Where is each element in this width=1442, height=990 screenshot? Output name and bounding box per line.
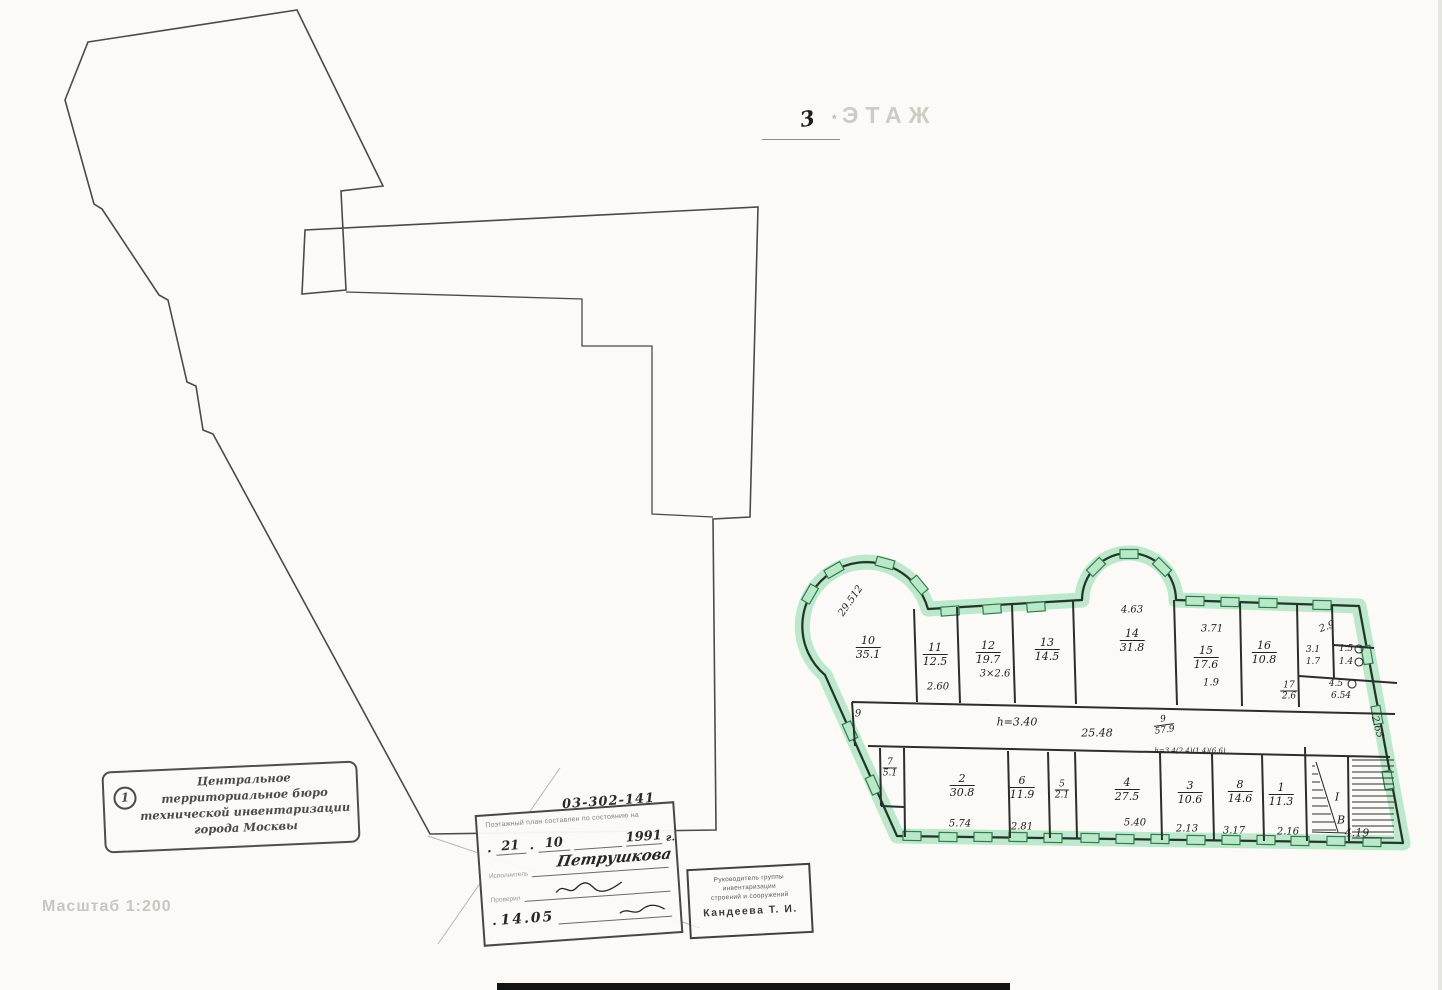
highlight-band	[802, 553, 1403, 843]
room-label-13: 1314.5	[1035, 637, 1060, 663]
dim-room8: 3.17	[1223, 826, 1245, 837]
date-sep-2: .	[529, 838, 535, 853]
corridor-tick-number: 9	[855, 709, 861, 720]
dim-strip1: 4.5	[1329, 679, 1343, 689]
dim-room3: 2.13	[1176, 824, 1198, 835]
floor-word: ЭТАЖ	[842, 102, 936, 129]
date-month: 10	[537, 835, 570, 853]
room-label-16: 1610.8	[1252, 640, 1277, 666]
dim-wc2: 1.4	[1339, 657, 1353, 667]
ceiling-height-note: h=3.40	[997, 716, 1038, 729]
room-label-9-corridor: 957.9	[1153, 713, 1176, 737]
dim-room6: 2.81	[1011, 822, 1033, 833]
room-label-7: 75.1	[883, 758, 897, 779]
bti-stamp-text: Центральное территориальное бюро техниче…	[138, 767, 353, 840]
dim-cluster-w2: 1.7	[1306, 657, 1320, 667]
dim-cluster-w1: 3.1	[1306, 645, 1320, 655]
dim-room4: 5.40	[1124, 818, 1146, 829]
window-hatches	[802, 550, 1394, 847]
executor-label: Исполнитель	[489, 871, 529, 881]
dim-strip2: 6.54	[1331, 691, 1351, 701]
scan-bottom-bar	[497, 983, 1010, 990]
room-label-2: 230.8	[950, 773, 975, 799]
approval-stamp: Руководитель группы инвентаризации строе…	[686, 863, 813, 939]
bottom-date: 14.05	[500, 909, 555, 929]
executor-line: Петрушкова	[531, 853, 668, 877]
floor-title-mark: *	[832, 112, 837, 126]
room-label-15: 1517.6	[1194, 645, 1219, 671]
room-label-11: 1112.5	[923, 642, 948, 668]
checker-signature-scribble	[553, 876, 626, 899]
building-outline	[65, 10, 758, 834]
room-label-5: 52.1	[1055, 780, 1069, 801]
scan-right-edge	[1438, 0, 1442, 990]
dim-room11: 2.60	[927, 682, 949, 693]
dim-corridor-length: 25.48	[1081, 727, 1113, 740]
dim-room14-top: 4.63	[1121, 605, 1143, 616]
room-label-12: 1219.7	[976, 640, 1001, 666]
room-label-10: 1035.1	[856, 635, 881, 661]
bti-stamp-badge: 1	[113, 786, 137, 810]
date-year-suffix: г.	[665, 832, 675, 844]
dim-room12: 3×2.6	[980, 669, 1011, 680]
dim-room15-top: 3.71	[1201, 624, 1223, 635]
dim-stair: 4.19	[1345, 827, 1370, 840]
form-header: Поэтажный план составлен по состоянию на	[485, 810, 665, 830]
room-label-8: 814.6	[1228, 779, 1253, 805]
checker-row: Проверил	[490, 877, 671, 905]
room-label-3: 310.6	[1178, 780, 1203, 806]
room-label-6: 611.9	[1010, 775, 1035, 801]
checker-line	[524, 877, 671, 902]
bottom-signature-scribble	[618, 900, 669, 919]
form-box: Поэтажный план составлен по состоянию на…	[475, 801, 684, 947]
approver-name: Кандеева Т. И.	[690, 902, 810, 920]
room-label-14: 1431.8	[1120, 628, 1145, 654]
bottom-sep: .	[492, 914, 498, 929]
floor-title-underline	[762, 139, 840, 140]
dim-room15-bot: 1.9	[1203, 678, 1219, 689]
room-label-17: 172.6	[1280, 681, 1297, 702]
date-day: 21	[495, 838, 526, 856]
bottom-date-row: . 14.05	[492, 901, 673, 930]
executor-row: Исполнитель Петрушкова	[488, 853, 669, 881]
date-year: 1991	[625, 828, 662, 846]
bottom-line	[558, 902, 672, 925]
scale-label: Масштаб 1:200	[42, 898, 172, 916]
stair-roman-numeral: I	[1335, 791, 1339, 804]
bti-stamp: 1 Центральное территориальное бюро техни…	[101, 760, 360, 853]
wall-note: h=3.4(2.4)(1.4)(6.6)	[1154, 747, 1225, 755]
date-sep-1: .	[486, 841, 492, 856]
stair-letter: В	[1337, 814, 1345, 827]
dim-room1: 2.16	[1277, 827, 1299, 838]
room-label-4: 427.5	[1115, 777, 1140, 803]
room-label-1: 111.3	[1269, 782, 1294, 808]
dim-room2: 5.74	[949, 819, 971, 830]
checker-label: Проверил	[490, 895, 520, 904]
dim-wc1: 1.5	[1339, 644, 1353, 654]
